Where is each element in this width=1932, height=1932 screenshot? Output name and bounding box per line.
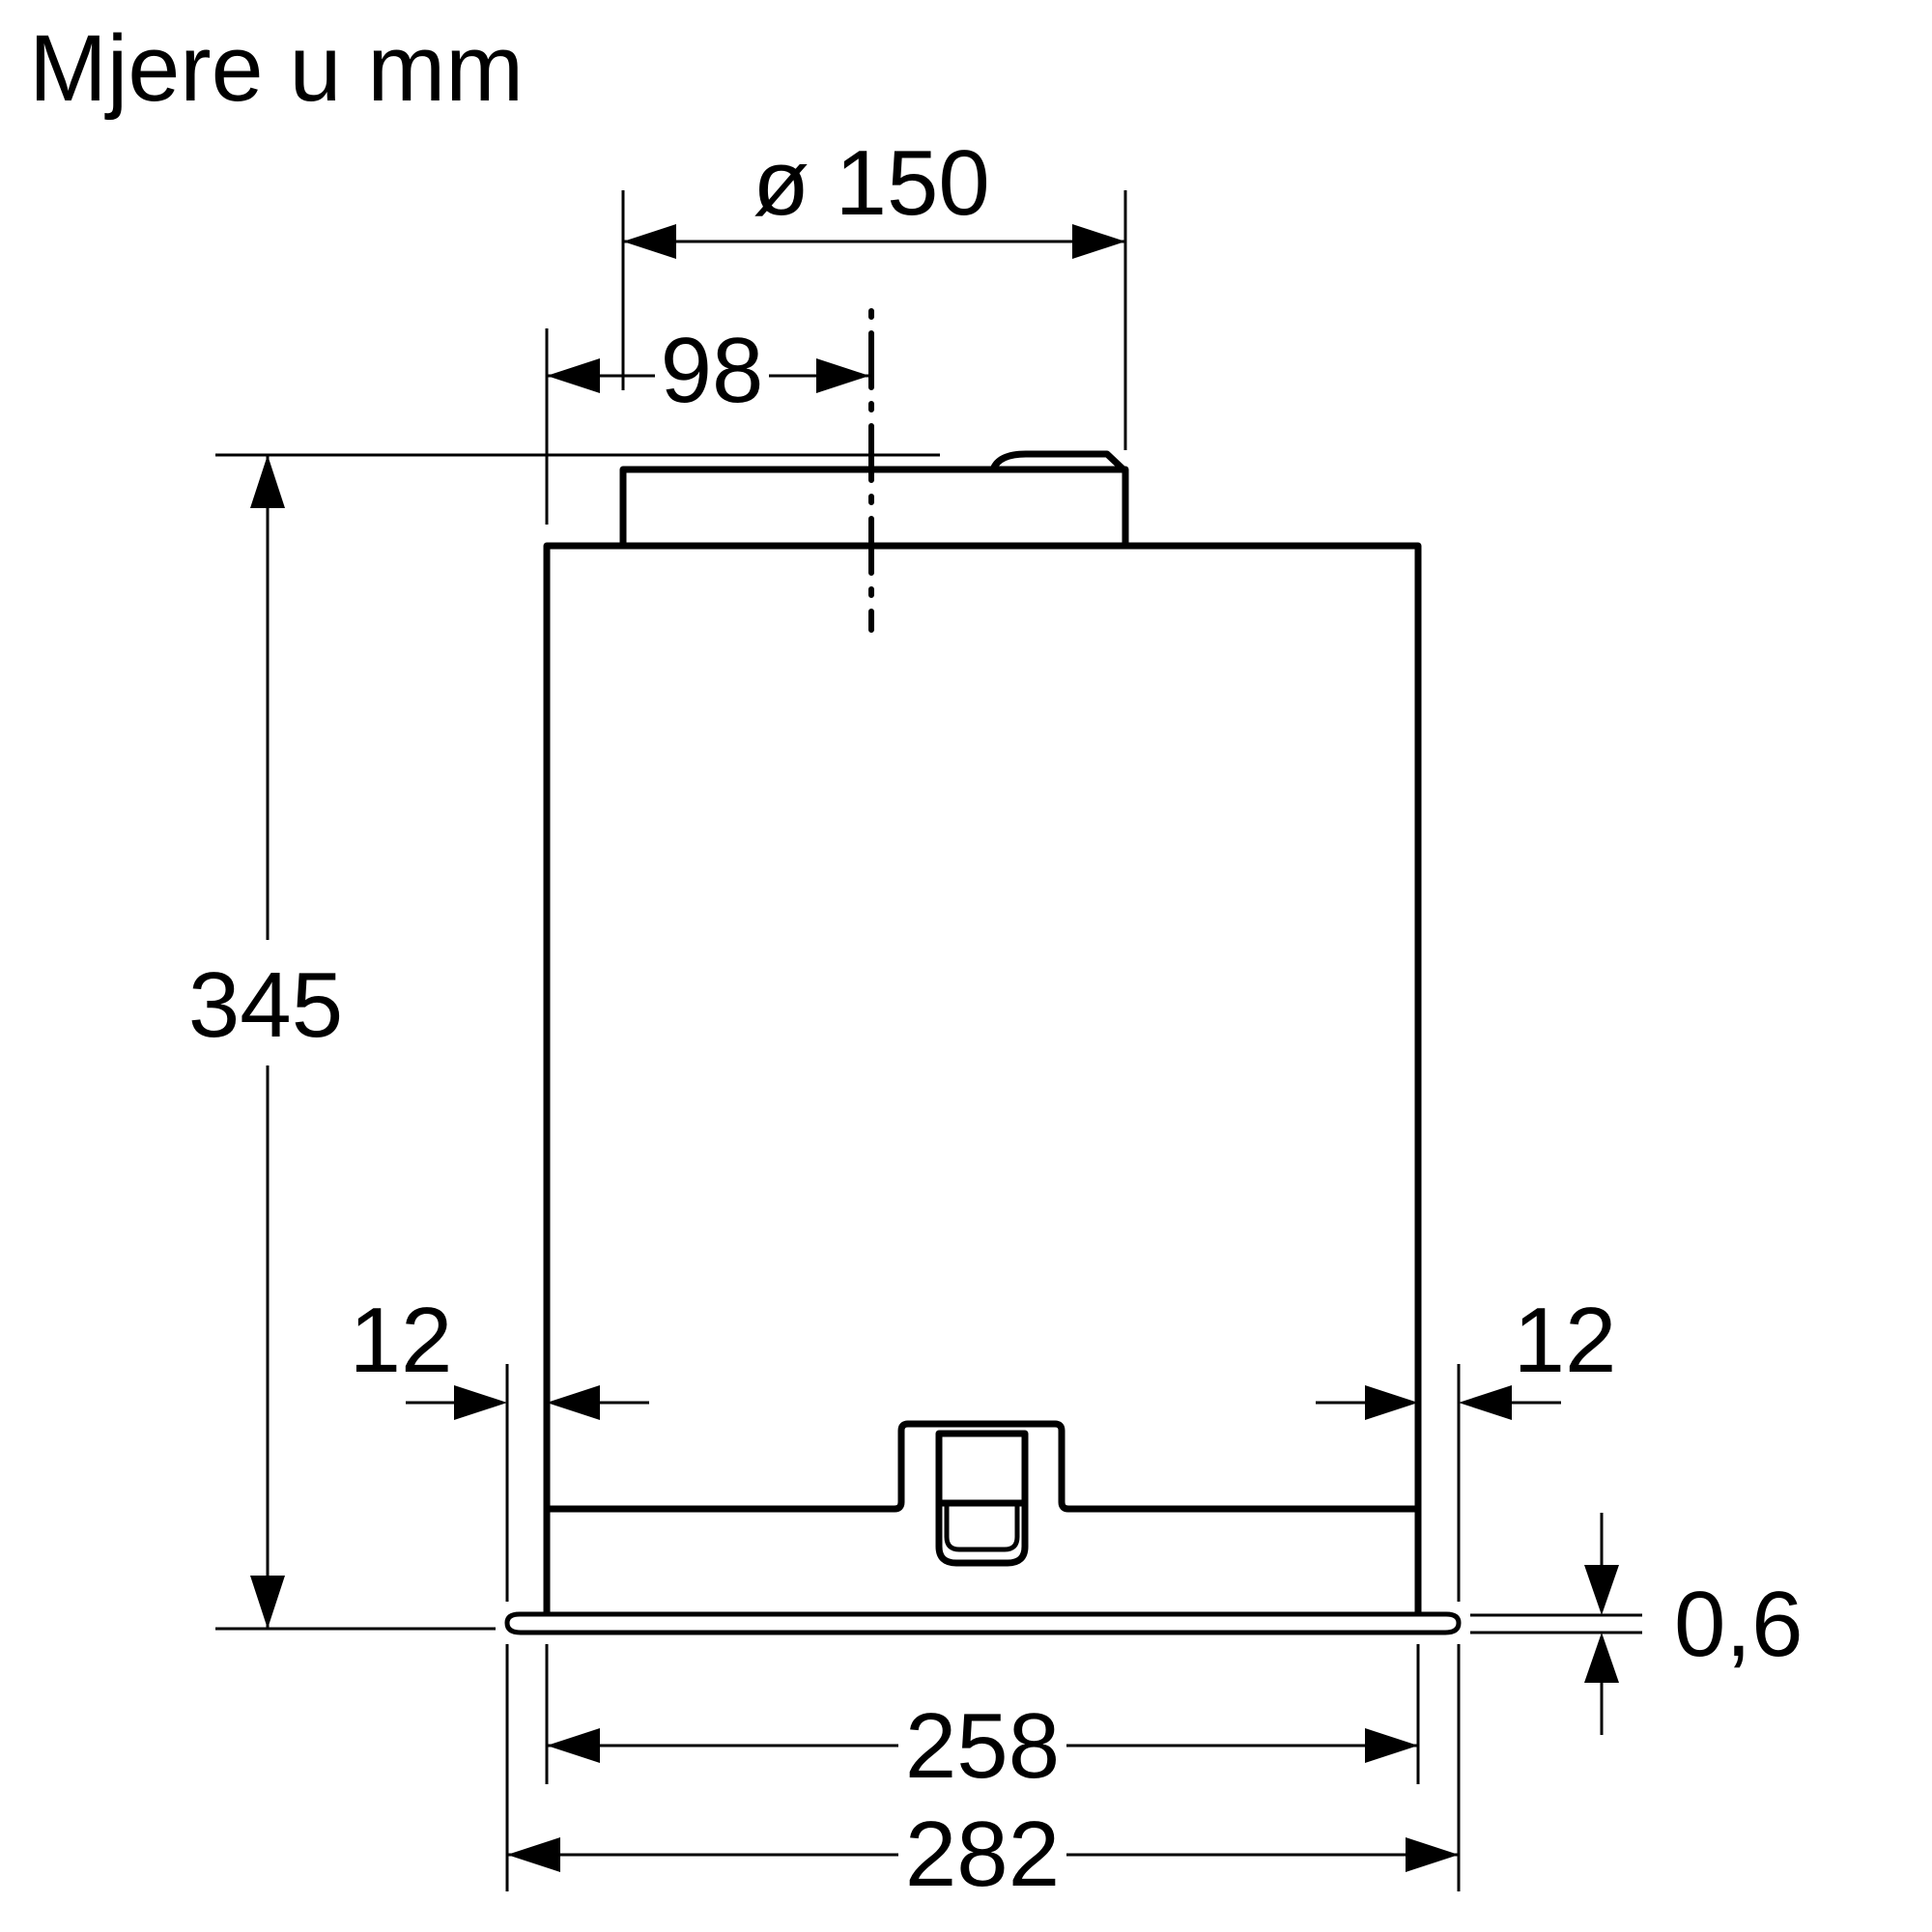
arrow-right-icon — [816, 358, 869, 393]
dim-overhang-right: 12 — [1316, 1289, 1616, 1602]
dim-body-width-label: 258 — [905, 1694, 1060, 1798]
arrow-up-icon — [1584, 1633, 1619, 1683]
dim-body-height: 345 — [188, 455, 940, 1629]
dim-duct-offset: 98 — [547, 319, 869, 525]
dim-overhang-left-label: 12 — [350, 1289, 453, 1392]
arrow-right-icon — [1365, 1728, 1418, 1763]
arrow-down-icon — [250, 1576, 285, 1629]
arrow-right-icon — [1406, 1837, 1459, 1872]
flange-plate — [507, 1614, 1459, 1633]
dim-flange-width-label: 282 — [905, 1803, 1060, 1906]
arrow-left-icon — [623, 224, 676, 259]
arrow-left-icon — [507, 1837, 560, 1872]
dim-flange-thickness-label: 0,6 — [1674, 1573, 1803, 1676]
dim-body-width: 258 — [547, 1644, 1418, 1798]
dim-body-height-label: 345 — [188, 953, 343, 1057]
latch-button-inner — [947, 1503, 1017, 1549]
arrow-down-icon — [1584, 1565, 1619, 1615]
arrow-right-icon — [454, 1385, 507, 1420]
dim-overhang-right-label: 12 — [1514, 1289, 1617, 1392]
dim-overhang-left: 12 — [350, 1289, 649, 1602]
arrow-left-icon — [1459, 1385, 1512, 1420]
technical-drawing-canvas: ø 150 98 345 12 12 — [0, 0, 1932, 1932]
arrow-right-icon — [1072, 224, 1125, 259]
arrow-up-icon — [250, 455, 285, 508]
arrow-left-icon — [547, 358, 600, 393]
arrow-right-icon — [1365, 1385, 1418, 1420]
dim-duct-diameter-label: ø 150 — [753, 131, 989, 235]
hood-body-outline — [547, 546, 1418, 1614]
appliance-outline — [507, 311, 1459, 1633]
dim-flange-thickness: 0,6 — [1470, 1513, 1803, 1735]
latch-button-outline — [939, 1434, 1025, 1563]
dim-duct-offset-label: 98 — [661, 319, 764, 422]
arrow-left-icon — [547, 1728, 600, 1763]
arrow-left-icon — [547, 1385, 600, 1420]
